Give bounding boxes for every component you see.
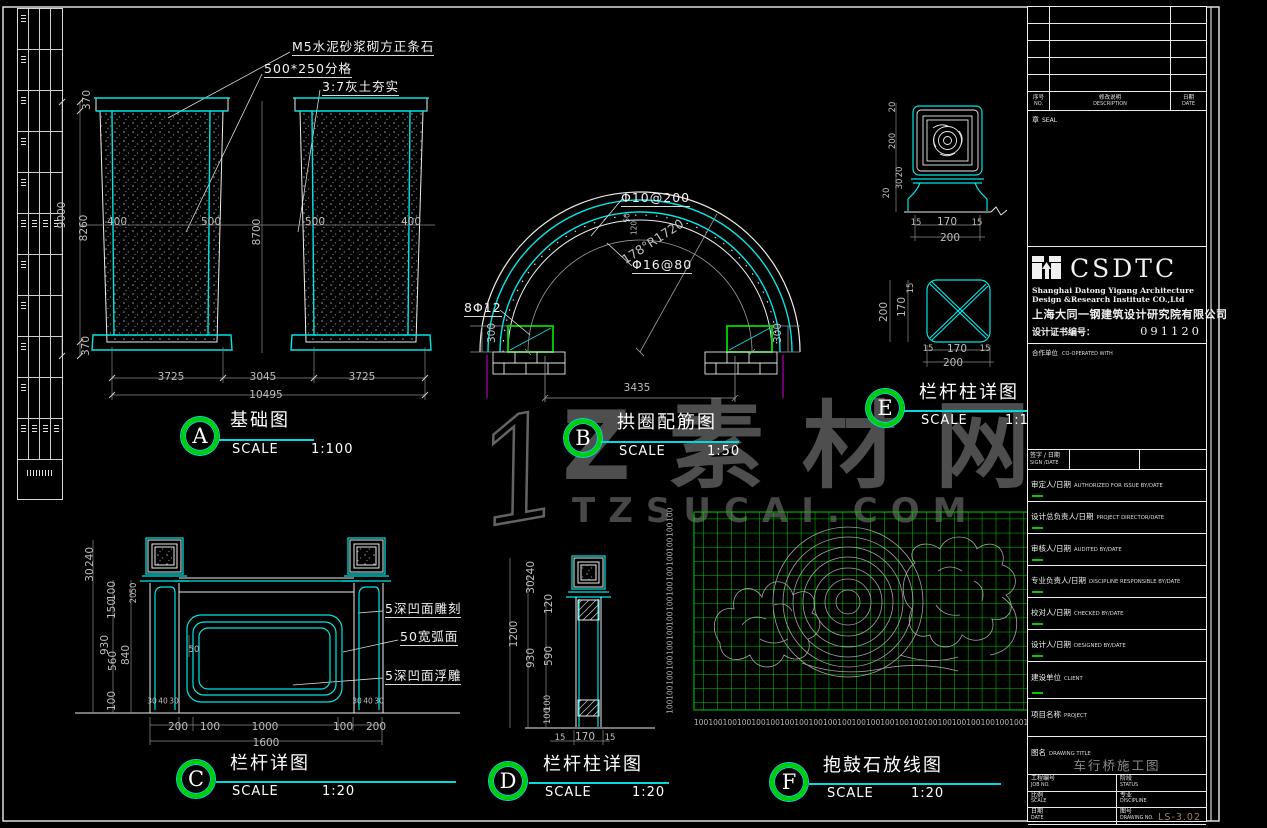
dim-label: 30 — [169, 697, 179, 705]
sign-row-director: 设计总负责人/日期PROJECT DIRECTOR/DATE — [1028, 502, 1206, 534]
dim-label: 100 — [107, 691, 118, 711]
dim-label: 1200 — [509, 621, 520, 648]
detail-c-letter: C — [188, 767, 204, 791]
dim-label: 30 — [352, 697, 362, 705]
rev-header-desc: 修改说明DESCRIPTION — [1050, 92, 1171, 110]
detail-a-scale-value: 1:100 — [311, 443, 353, 456]
dim-label: 15 — [907, 283, 916, 294]
cooperation-area: 合作单位CO-OPERATED WITH — [1028, 344, 1206, 450]
drawing-number-value: LS-3.02 — [1158, 812, 1201, 823]
company-logo-icon — [1032, 254, 1062, 282]
strip-row — [18, 337, 62, 378]
dim-label: 590 — [544, 646, 555, 666]
sign-row-discipline: 专业负责人/日期DISCIPLINE RESPONSIBLE BY/DATE — [1028, 566, 1206, 598]
strip-row — [18, 9, 62, 50]
bottom-info-grid: 工程编号JOB NO. 阶段STATUS 比例SCALE 专业DISCIPLIN… — [1028, 775, 1206, 825]
detail-b-scale-label: SCALE — [619, 445, 666, 458]
dim-label: 120 — [630, 221, 638, 235]
railing-note-relief: 5深凹面浮雕 — [385, 669, 461, 685]
dim-label: 200 — [168, 722, 188, 733]
dim-label: 200 — [366, 722, 386, 733]
revision-table: 序号NO. 修改说明DESCRIPTION 日期DATE — [1028, 7, 1206, 111]
dim-label: 150 — [107, 599, 118, 619]
arch-rebar-top-label: Φ10@200 — [621, 191, 690, 207]
cad-sheet: 1 Z素材网 TZSUCAI.COM — [0, 0, 1267, 828]
dim-label: 200 — [940, 233, 960, 244]
detail-c-bubble: C — [177, 760, 215, 798]
scale-cell: 比例SCALE — [1028, 792, 1117, 809]
dim-label: 240 — [85, 547, 96, 567]
dim-label: 30 — [526, 580, 537, 593]
arch-reinforcement-drawing — [460, 180, 810, 410]
rev-header-date: 日期DATE — [1171, 92, 1206, 110]
dim-label: 8700 — [252, 219, 263, 246]
dim-label: 170 — [947, 344, 967, 355]
strip-row — [18, 296, 62, 337]
foundation-note-grid: 500*250分格 — [264, 62, 352, 78]
detail-f-letter: F — [782, 770, 797, 794]
detail-e-bubble: E — [866, 389, 904, 427]
caption-underline — [904, 410, 1037, 412]
caption-underline — [219, 439, 314, 441]
sign-row-authorized: 审定人/日期AUTHORIZED FOR ISSUE BY/DATE — [1028, 470, 1206, 502]
railing-note-carving: 5深凹面雕刻 — [385, 602, 461, 618]
company-name-en: Shanghai Datong Yigang Architecture Desi… — [1032, 286, 1202, 305]
dim-label: 20 — [889, 102, 898, 113]
strip-row — [18, 50, 62, 91]
sign-row-checked: 校对人/日期CHECKED BY/DATE — [1028, 598, 1206, 630]
dim-label: 3725 — [349, 372, 376, 383]
detail-a-letter: A — [192, 424, 207, 448]
dim-label: 400 — [401, 217, 421, 228]
caption-underline — [809, 783, 1001, 785]
foundation-note-soil: 3:7灰土夯实 — [322, 80, 399, 96]
post-d-drawing — [495, 545, 670, 745]
detail-c-title: 栏杆详图 — [230, 755, 310, 773]
railing-note-arc-face: 50宽弧面 — [400, 630, 458, 646]
dim-label: 370 — [82, 90, 93, 110]
dim-label: 40 — [158, 697, 168, 705]
foundation-note-stone: M5水泥砂浆砌方正条石 — [292, 40, 434, 56]
detail-f-scale-value: 1:20 — [911, 787, 944, 800]
detail-a-bubble: A — [181, 417, 219, 455]
detail-a-title: 基础图 — [230, 412, 290, 430]
drawing-title-value: 车行桥施工图 — [1028, 755, 1206, 774]
dim-label: 170 — [897, 297, 908, 317]
dim-label: 200 — [943, 358, 963, 369]
dim-label: 30 — [147, 697, 157, 705]
cert-number-row: 设计证书编号： 091120 — [1032, 324, 1202, 338]
grid-left-dims: 1001001001001001001001001001001001001001… — [662, 511, 678, 711]
dim-label: 240 — [526, 561, 537, 581]
dim-label: 300 — [773, 323, 784, 343]
dim-label: 8260 — [79, 215, 90, 242]
dim-label: 9000 — [57, 202, 68, 229]
dim-label: 15 — [980, 345, 991, 354]
dim-label: 120 — [544, 594, 555, 614]
detail-f-scale-label: SCALE — [827, 787, 874, 800]
seal-area: 章SEAL — [1028, 111, 1206, 247]
strip-row — [18, 255, 62, 296]
dim-label: 15 — [923, 345, 934, 354]
drum-stone-grid-drawing — [690, 505, 1035, 730]
dim-label: 15 — [911, 219, 922, 228]
detail-d-scale-label: SCALE — [545, 786, 592, 799]
arch-rebar-side-label: 8Φ12 — [464, 301, 502, 317]
grid-bottom-dims: 1001001001001001001001001001001001001001… — [694, 719, 1028, 731]
detail-a-scale-label: SCALE — [232, 443, 279, 456]
dim-label: 1600 — [253, 738, 280, 749]
dim-label: 170 — [937, 217, 957, 228]
dim-label: 370 — [81, 336, 92, 356]
title-block: 序号NO. 修改说明DESCRIPTION 日期DATE 章SEAL CSDTC — [1027, 6, 1207, 822]
left-revision-strip — [17, 8, 63, 500]
dim-label: 3435 — [624, 383, 651, 394]
detail-b-bubble: B — [564, 419, 602, 457]
sign-row-designed: 设计人/日期DESIGNED BY/DATE — [1028, 630, 1206, 662]
sign-row-audited: 审核人/日期AUDITED BY/DATE — [1028, 534, 1206, 566]
dim-label: 15 — [555, 734, 566, 743]
detail-c-scale-label: SCALE — [232, 785, 279, 798]
sign-date-row: 签字 / 日期SIGN /DATE — [1028, 450, 1206, 470]
caption-underline — [601, 441, 739, 443]
dim-label: 170 — [575, 732, 595, 743]
detail-d-bubble: D — [489, 762, 527, 800]
detail-b-letter: B — [575, 426, 590, 450]
dim-label: 300 — [487, 323, 498, 343]
detail-e-letter: E — [877, 396, 892, 420]
rev-header-no: 序号NO. — [1028, 92, 1050, 110]
dim-label: 20 — [130, 593, 139, 604]
dim-label: 20 — [883, 188, 892, 199]
caption-underline — [216, 781, 456, 783]
company-acronym: CSDTC — [1070, 254, 1177, 283]
caption-underline — [529, 782, 669, 784]
dim-label: 40 — [363, 697, 373, 705]
drawing-title-row: 图名DRAWING TITLE 车行桥施工图 — [1028, 737, 1206, 775]
dim-label: 100 — [200, 722, 220, 733]
project-row: 项目名称PROJECT — [1028, 699, 1206, 737]
dim-label: 10495 — [249, 390, 282, 401]
dim-label: 50 — [189, 646, 200, 655]
dim-label: 400 — [107, 217, 127, 228]
detail-e-title: 栏杆柱详图 — [919, 384, 1019, 402]
dim-label: 30 — [896, 179, 905, 190]
client-row: 建设单位CLIENT — [1028, 662, 1206, 699]
dim-label: 840 — [121, 645, 132, 665]
dim-label: 200 — [879, 302, 890, 322]
dim-label: 1000 — [252, 722, 279, 733]
strip-row — [18, 132, 62, 173]
dim-label: 930 — [526, 648, 537, 668]
detail-e-scale-label: SCALE — [921, 414, 968, 427]
company-name-cn: 上海大同一钢建筑设计研究院有限公司 — [1032, 306, 1202, 322]
strip-row — [18, 91, 62, 132]
detail-f-title: 抱鼓石放线图 — [823, 757, 943, 775]
detail-d-letter: D — [500, 769, 517, 793]
dim-label: 560 — [108, 651, 119, 671]
dim-label: 20 — [896, 167, 905, 178]
detail-d-title: 栏杆柱详图 — [543, 756, 643, 774]
detail-c-scale-value: 1:20 — [322, 785, 355, 798]
arch-rebar-arc-label: Φ16@80 — [632, 258, 692, 274]
detail-b-title: 拱圈配筋图 — [617, 414, 717, 432]
detail-d-scale-value: 1:20 — [632, 786, 665, 799]
job-no-cell: 工程编号JOB NO. — [1028, 775, 1117, 792]
dim-label: 100 — [333, 722, 353, 733]
dim-label: 500 — [305, 217, 325, 228]
drawing-no-cell: 图号DRAWING NO.LS-3.02 — [1117, 808, 1206, 825]
strip-row — [18, 419, 62, 460]
dim-label: 3725 — [158, 372, 185, 383]
dim-label: 15 — [972, 219, 983, 228]
strip-row — [18, 378, 62, 419]
strip-footer — [18, 470, 62, 514]
date-cell: 日期DATE — [1028, 808, 1117, 825]
dim-label: 200 — [889, 133, 898, 149]
discipline-cell: 专业DISCIPLINE — [1117, 792, 1206, 809]
detail-b-scale-value: 1:50 — [707, 445, 740, 458]
status-cell: 阶段STATUS — [1117, 775, 1206, 792]
dim-label: 100 — [544, 708, 553, 724]
dim-label: 15 — [605, 734, 616, 743]
dim-label: 30 — [374, 697, 384, 705]
dim-label: 30 — [85, 568, 96, 581]
detail-f-bubble: F — [770, 763, 808, 801]
dim-label: 500 — [201, 217, 221, 228]
company-logo-block: CSDTC Shanghai Datong Yigang Architectur… — [1028, 247, 1206, 344]
dim-label: 3045 — [250, 372, 277, 383]
